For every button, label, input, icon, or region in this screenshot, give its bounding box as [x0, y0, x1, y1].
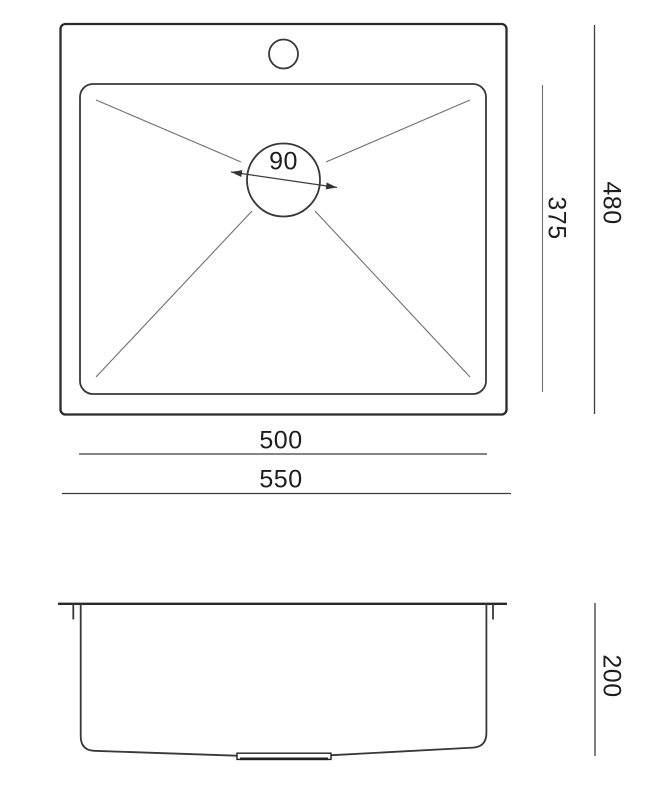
label-bowl-length: 500	[259, 429, 302, 454]
label-drain-diameter: 90	[269, 150, 298, 175]
crease-line-bottom-left	[96, 211, 252, 377]
label-overall-width: 480	[599, 181, 624, 224]
label-depth: 200	[599, 654, 624, 697]
sink-technical-drawing: 90 375 480 500 550 200	[0, 0, 672, 800]
crease-line-top-right	[326, 100, 470, 162]
bowl-profile	[81, 604, 487, 756]
outer-rim-outline	[61, 24, 507, 415]
faucet-hole	[269, 40, 298, 69]
side-view	[58, 603, 595, 759]
top-view	[61, 24, 507, 415]
drawing-linework	[0, 0, 672, 800]
top-view-dimensions	[62, 25, 595, 494]
crease-line-bottom-right	[315, 211, 470, 377]
bowl-outline	[80, 84, 486, 394]
label-bowl-width: 375	[544, 196, 569, 239]
crease-line-top-left	[96, 100, 241, 162]
label-overall-length: 550	[259, 468, 302, 493]
